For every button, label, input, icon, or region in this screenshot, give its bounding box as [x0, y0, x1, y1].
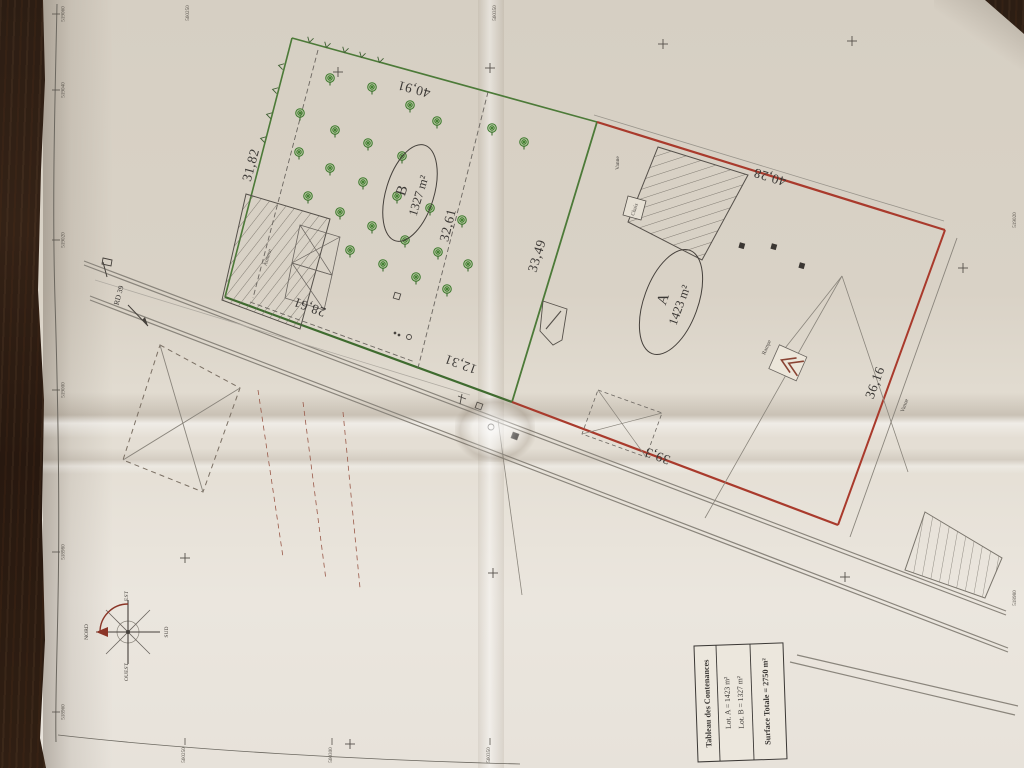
grid-tick-label: 518960 — [61, 704, 67, 720]
dim-39-3: 39,3 — [643, 445, 673, 468]
road — [84, 261, 1018, 715]
label-vanne-2: Vanne — [900, 398, 911, 413]
tree-symbol — [379, 260, 388, 272]
grid-tick-label: 518980 — [61, 544, 67, 560]
grid-cross — [485, 63, 495, 73]
tree-symbol — [296, 109, 305, 121]
lot-b-ellipse — [372, 138, 447, 248]
grid-cross — [180, 553, 190, 563]
grid-cross — [658, 39, 668, 49]
lot-division-line — [512, 122, 597, 402]
grid-cross — [488, 568, 498, 578]
tree-symbol — [368, 222, 377, 234]
tree-symbol — [458, 216, 467, 228]
utility-box-3 — [393, 292, 400, 299]
t-mark — [458, 394, 466, 404]
orchard-trees — [295, 74, 529, 297]
grid-tick-label: 560250 — [181, 747, 187, 763]
parcel-line-2 — [303, 402, 326, 580]
table-row-lot-a: Lot. A = 1423 m² — [722, 676, 733, 729]
road-name: RD 39 — [112, 284, 126, 306]
lot-a-parcel — [512, 115, 957, 537]
dim-12-31: 12,31 — [442, 351, 478, 377]
tree-symbol — [346, 246, 355, 258]
tree-symbol — [326, 164, 335, 176]
grid-tick-label: 560250 — [185, 5, 191, 21]
grid-tick-label: 519020 — [61, 232, 67, 248]
dim-36-16: 36,16 — [862, 364, 888, 400]
dim-33-49: 33,49 — [525, 238, 549, 274]
table-row-lot-b: Lot. B = 1327 m² — [735, 675, 746, 729]
road-edge-lower-b — [90, 300, 1008, 652]
tree-symbol — [364, 139, 373, 151]
projection-line-3 — [782, 276, 842, 352]
ramp-symbol — [769, 345, 807, 381]
utility-box-1 — [475, 402, 483, 410]
hedge-mark — [278, 62, 284, 69]
tiny-labels: Annexe Chais Rampe Vanne Vanne — [263, 156, 911, 414]
grid-tick-label: 519040 — [61, 82, 67, 98]
compass-rose: EST NORD OUEST SUD — [84, 590, 170, 681]
road-edge-lower-a — [90, 296, 1008, 648]
parcel-line-4 — [498, 420, 522, 595]
dot-2 — [398, 334, 400, 336]
road-edge-upper-b — [84, 265, 1006, 615]
marker-post-1 — [738, 242, 745, 249]
tree-symbol — [443, 285, 452, 297]
frame-bottom-line — [58, 735, 520, 764]
grid-crosses — [180, 36, 968, 749]
tree-symbol — [368, 83, 377, 95]
frame-left-line — [54, 4, 59, 742]
grid-cross — [333, 67, 343, 77]
parcel-line-3 — [343, 412, 360, 588]
compass-est: EST — [124, 590, 130, 601]
dim-40-91: 40,91 — [396, 78, 432, 101]
tree-symbol — [406, 101, 415, 113]
grid-tick-label: 560350 — [486, 747, 492, 763]
road-edge-upper-a — [84, 261, 1006, 611]
tree-symbol — [464, 260, 473, 272]
compass-nord: NORD — [84, 624, 90, 640]
grid-tick-label: 518980 — [1012, 590, 1018, 606]
grid-tick-label: 560300 — [328, 747, 334, 763]
tree-symbol — [304, 192, 313, 204]
marker-post-2 — [770, 243, 777, 250]
tree-symbol — [401, 236, 410, 248]
tree-symbol — [520, 138, 529, 150]
tree-symbol — [434, 248, 443, 260]
lot-b-label: B 1327 m² — [372, 138, 447, 248]
dim-40-28: 40,28 — [752, 165, 788, 189]
grid-tick-label: 519060 — [61, 6, 67, 22]
lot-b-top-edge — [292, 38, 597, 122]
grid-tick-label: 560350 — [492, 5, 498, 21]
manhole-circle — [488, 424, 494, 430]
parcel-line-1 — [258, 390, 283, 557]
dim-32-61: 32,61 — [436, 207, 459, 243]
tree-symbol — [488, 124, 497, 136]
lot-a-road-edge — [512, 402, 838, 525]
tree-symbol — [433, 117, 442, 129]
photo-scene: 5190605190405190205190005189805189605602… — [0, 0, 1024, 768]
hatched-structure-right — [905, 512, 1002, 598]
tree-symbol — [412, 273, 421, 285]
lot-a-right-edge — [838, 230, 945, 525]
compass-center — [126, 630, 130, 634]
compass-sud: SUD — [164, 626, 170, 637]
grid-tick-label: 519000 — [61, 382, 67, 398]
contenance-table: Tableau des Contenances Lot. A = 1423 m²… — [694, 643, 787, 762]
building-diagonal-2 — [123, 388, 240, 460]
grid-cross — [847, 36, 857, 46]
grid-cross — [958, 263, 968, 273]
north-arrow-head — [96, 627, 108, 637]
label-rampe: Rampe — [761, 339, 773, 356]
compass-ouest: OUEST — [124, 662, 130, 681]
dot-1 — [394, 332, 396, 334]
ditch-line-a — [790, 662, 1015, 715]
grid-cross — [840, 572, 850, 582]
plan-drawing: 5190605190405190205190005189805189605602… — [0, 0, 1024, 768]
tree-symbol — [336, 208, 345, 220]
label-vanne-1: Vanne — [615, 156, 621, 170]
grid-cross — [345, 739, 355, 749]
lot-a-letter: A — [654, 291, 673, 307]
tree-symbol — [331, 126, 340, 138]
manhole-circle-2 — [407, 335, 412, 340]
border-frame — [54, 4, 520, 764]
ditch-line-b — [797, 655, 1018, 706]
gate-symbol — [540, 301, 567, 345]
projection-line-1 — [705, 276, 842, 518]
marker-post-3 — [798, 262, 805, 269]
tree-symbol — [295, 148, 304, 160]
grid-tick-label: 519020 — [1012, 212, 1018, 228]
building-diagonal-1 — [160, 345, 203, 492]
tree-symbol — [326, 74, 335, 86]
dimension-labels: 40,91 31,82 32,61 33,49 28,61 12,31 40,2… — [239, 78, 887, 468]
utility-box-2 — [511, 432, 519, 440]
tree-symbol — [359, 178, 368, 190]
